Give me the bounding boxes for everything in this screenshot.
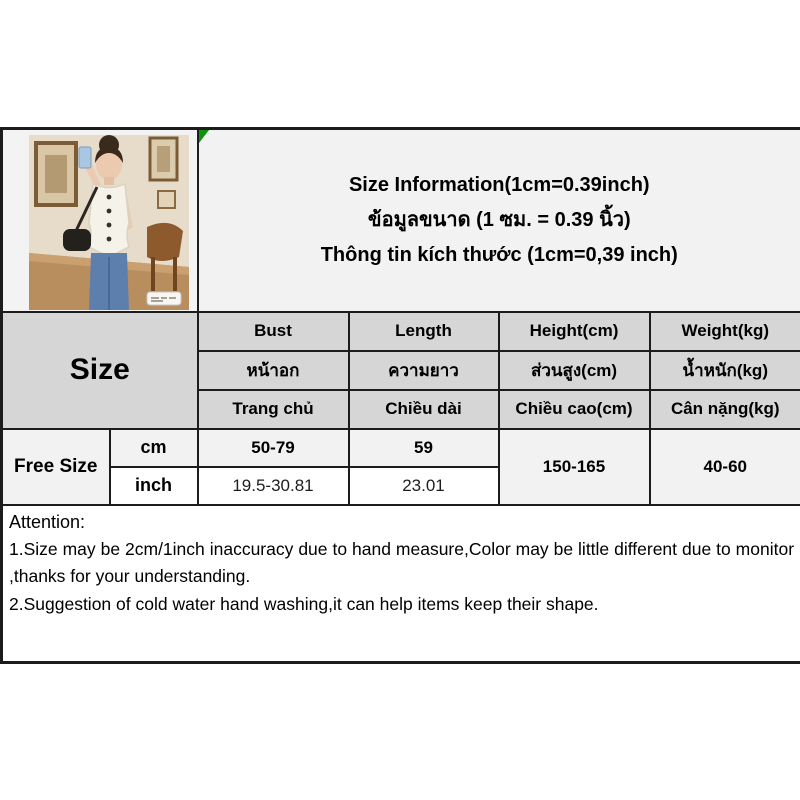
length-cm-value: 59 <box>349 429 499 467</box>
size-chart-sheet: Size Information(1cm=0.39inch) ข้อมูลขนา… <box>0 0 800 800</box>
col-weight-vi: Cân nặng(kg) <box>650 390 800 429</box>
col-height-vi: Chiều cao(cm) <box>499 390 650 429</box>
comment-marker-icon <box>199 130 209 143</box>
size-header: Size <box>2 312 198 429</box>
col-bust-vi: Trang chủ <box>198 390 349 429</box>
length-inch-value: 23.01 <box>349 467 499 505</box>
weight-range-value: 40-60 <box>650 429 800 505</box>
col-weight-en: Weight(kg) <box>650 312 800 351</box>
title-vietnamese: Thông tin kích thước (1cm=0,39 inch) <box>199 238 800 273</box>
size-info-table: Size Information(1cm=0.39inch) ข้อมูลขนา… <box>0 127 800 664</box>
size-name-cell: Free Size <box>2 429 110 505</box>
col-bust-th: หน้าอก <box>198 351 349 390</box>
attention-cell: Attention: 1.Size may be 2cm/1inch inacc… <box>2 505 800 663</box>
bust-cm-value: 50-79 <box>198 429 349 467</box>
title-thai: ข้อมูลขนาด (1 ซม. = 0.39 นิ้ว) <box>199 203 800 238</box>
col-length-th: ความยาว <box>349 351 499 390</box>
title-cell: Size Information(1cm=0.39inch) ข้อมูลขนา… <box>198 129 800 312</box>
attention-note-1: 1.Size may be 2cm/1inch inaccuracy due t… <box>9 536 794 591</box>
model-selfie-illustration <box>29 135 189 310</box>
product-photo-cell <box>2 129 198 312</box>
col-weight-th: น้ำหนัก(kg) <box>650 351 800 390</box>
product-photo <box>29 135 189 310</box>
unit-inch: inch <box>110 467 198 505</box>
col-length-en: Length <box>349 312 499 351</box>
height-range-value: 150-165 <box>499 429 650 505</box>
attention-heading: Attention: <box>9 509 794 536</box>
col-height-en: Height(cm) <box>499 312 650 351</box>
col-bust-en: Bust <box>198 312 349 351</box>
title-english: Size Information(1cm=0.39inch) <box>199 168 800 203</box>
col-length-vi: Chiều dài <box>349 390 499 429</box>
attention-note-2: 2.Suggestion of cold water hand washing,… <box>9 591 794 619</box>
wall-frame-small <box>158 191 175 208</box>
unit-cm: cm <box>110 429 198 467</box>
photo-watermark-tag <box>147 292 181 305</box>
bust-inch-value: 19.5-30.81 <box>198 467 349 505</box>
col-height-th: ส่วนสูง(cm) <box>499 351 650 390</box>
